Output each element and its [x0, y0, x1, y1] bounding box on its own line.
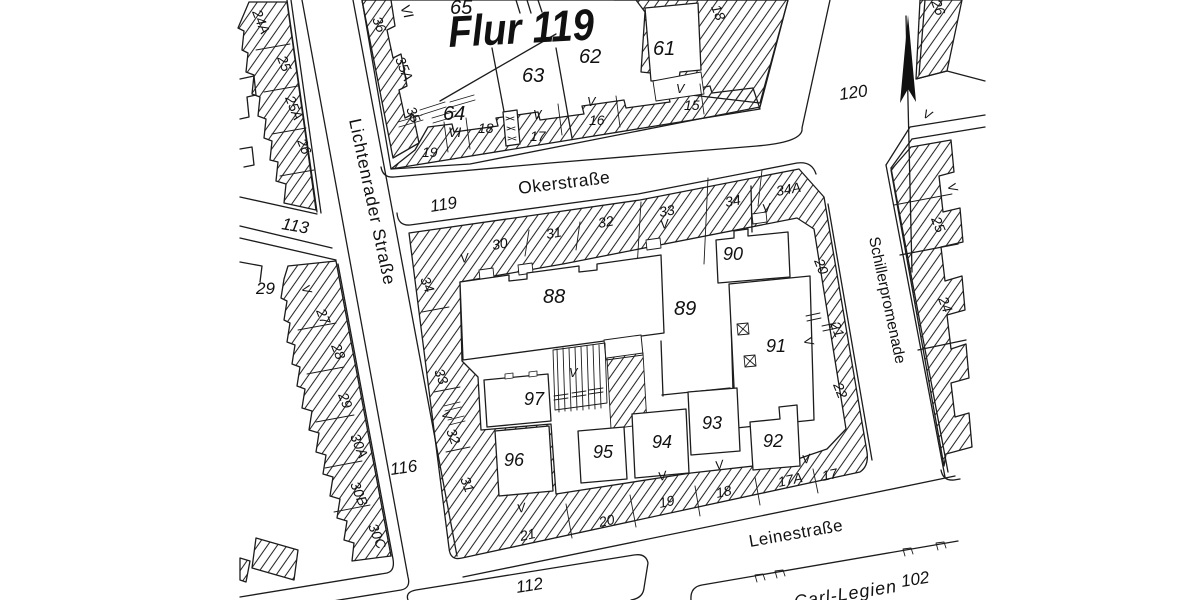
svg-text:90: 90 [723, 244, 743, 264]
svg-text:17: 17 [530, 128, 547, 144]
svg-text:16: 16 [589, 112, 605, 128]
svg-text:97: 97 [524, 389, 545, 409]
svg-text:63: 63 [522, 65, 544, 87]
svg-text:34: 34 [724, 191, 742, 209]
svg-text:29: 29 [255, 279, 275, 298]
svg-text:32: 32 [597, 212, 615, 230]
svg-text:30: 30 [491, 234, 509, 252]
svg-text:31: 31 [545, 223, 563, 241]
svg-text:61: 61 [653, 38, 675, 60]
svg-text:21: 21 [517, 525, 537, 544]
svg-text:18: 18 [478, 120, 494, 136]
svg-text:64: 64 [443, 103, 465, 125]
svg-text:15: 15 [684, 97, 700, 113]
svg-text:96: 96 [504, 450, 525, 470]
svg-text:116: 116 [389, 456, 419, 479]
svg-text:65: 65 [450, 0, 473, 19]
svg-text:89: 89 [674, 298, 696, 320]
svg-text:VI: VI [448, 124, 461, 140]
svg-text:93: 93 [702, 413, 722, 433]
svg-text:92: 92 [763, 431, 783, 451]
svg-text:62: 62 [579, 46, 601, 68]
svg-text:94: 94 [652, 432, 672, 452]
svg-text:95: 95 [593, 442, 614, 462]
svg-text:120: 120 [838, 81, 869, 104]
svg-text:19: 19 [422, 144, 438, 160]
svg-text:91: 91 [766, 336, 786, 356]
svg-text:20: 20 [596, 511, 616, 530]
svg-text:88: 88 [543, 286, 565, 308]
